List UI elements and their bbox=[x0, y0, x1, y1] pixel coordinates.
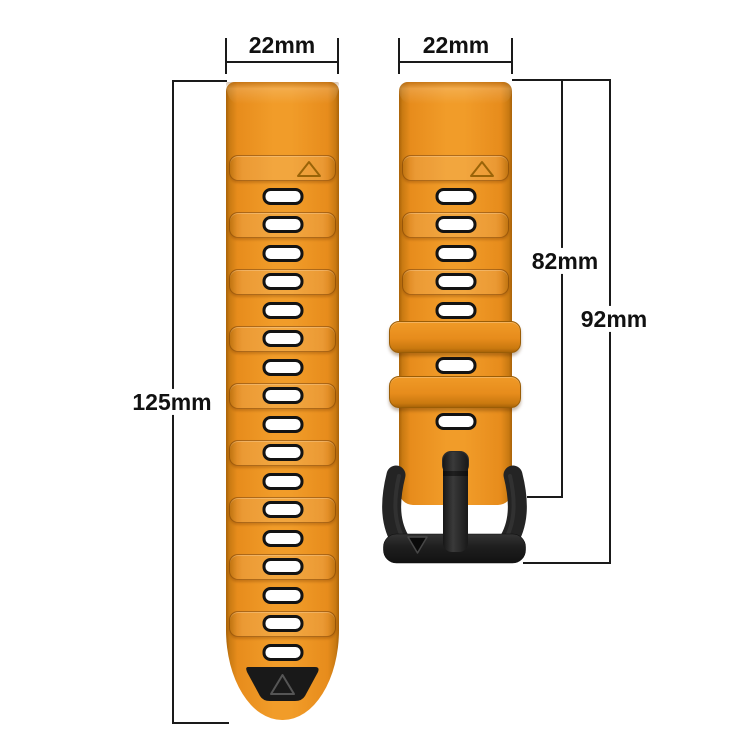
dim-tick bbox=[337, 38, 339, 74]
strap-dimension-diagram: 22mm 22mm 125mm 82mm 92mm bbox=[0, 0, 750, 750]
dim-label-right-width: 22mm bbox=[420, 32, 492, 58]
adjustment-hole bbox=[262, 273, 303, 290]
adjustment-hole bbox=[262, 387, 303, 404]
adjustment-hole bbox=[262, 216, 303, 233]
dim-seg bbox=[172, 722, 229, 724]
adjustment-hole bbox=[435, 216, 476, 233]
adjustment-hole bbox=[262, 473, 303, 490]
adjustment-hole bbox=[262, 359, 303, 376]
pin-buckle bbox=[375, 445, 530, 575]
dim-label-left-length: 125mm bbox=[129, 389, 214, 415]
right-strap bbox=[399, 82, 512, 505]
triangle-plate bbox=[229, 155, 336, 181]
keeper-loop bbox=[389, 376, 521, 408]
adjustment-hole bbox=[262, 188, 303, 205]
dim-seg bbox=[523, 562, 611, 564]
dim-label-left-width: 22mm bbox=[246, 32, 318, 58]
left-strap bbox=[226, 82, 339, 720]
adjustment-hole bbox=[262, 245, 303, 262]
dim-seg bbox=[527, 496, 563, 498]
adjustment-hole bbox=[435, 302, 476, 319]
dim-label-strap-length: 82mm bbox=[529, 248, 601, 274]
dim-line-left-width bbox=[225, 61, 339, 63]
adjustment-hole bbox=[435, 413, 476, 430]
adjustment-hole bbox=[262, 587, 303, 604]
adjustment-hole bbox=[262, 530, 303, 547]
keeper-loop bbox=[389, 321, 521, 353]
adjustment-hole bbox=[262, 615, 303, 632]
dim-line-strap-length bbox=[561, 79, 563, 498]
adjustment-hole bbox=[262, 501, 303, 518]
dim-tick bbox=[511, 38, 513, 74]
adjustment-hole bbox=[262, 558, 303, 575]
adjustment-hole bbox=[262, 416, 303, 433]
dim-label-total-length: 92mm bbox=[578, 306, 650, 332]
dim-line-right-width bbox=[398, 61, 513, 63]
up-triangle-icon bbox=[296, 159, 322, 179]
adjustment-hole bbox=[262, 330, 303, 347]
adjustment-hole bbox=[435, 273, 476, 290]
up-triangle-icon bbox=[469, 159, 495, 179]
dim-tick bbox=[225, 38, 227, 74]
strap-end-black-inlay bbox=[226, 663, 339, 708]
adjustment-hole bbox=[435, 245, 476, 262]
adjustment-hole bbox=[435, 357, 476, 374]
triangle-plate bbox=[402, 155, 509, 181]
dim-seg bbox=[172, 80, 227, 82]
dim-tick bbox=[398, 38, 400, 74]
adjustment-hole bbox=[435, 188, 476, 205]
buckle-tongue bbox=[443, 452, 468, 552]
adjustment-hole bbox=[262, 644, 303, 661]
adjustment-hole bbox=[262, 444, 303, 461]
adjustment-hole bbox=[262, 302, 303, 319]
